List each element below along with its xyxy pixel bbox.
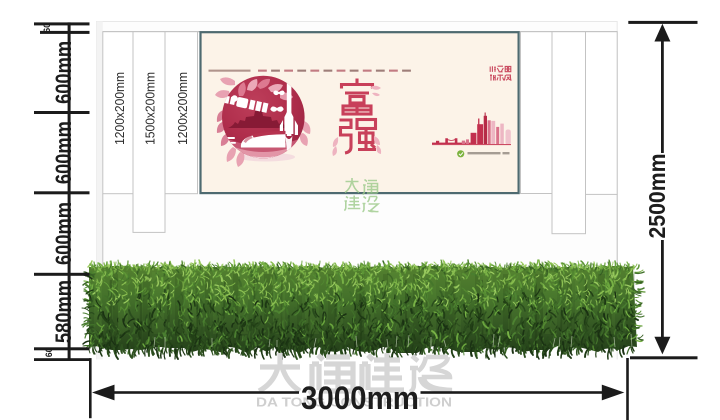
svg-text:60: 60 <box>44 347 54 357</box>
svg-text:600mm: 600mm <box>51 121 76 184</box>
svg-text:3000mm: 3000mm <box>301 380 419 416</box>
svg-text:600mm: 600mm <box>51 202 76 265</box>
svg-text:1200x200mm: 1200x200mm <box>113 72 127 145</box>
svg-text:600mm: 600mm <box>51 41 76 104</box>
svg-text:1500x200mm: 1500x200mm <box>144 72 158 145</box>
svg-text:580mm: 580mm <box>51 280 76 343</box>
svg-text:2500mm: 2500mm <box>644 154 670 239</box>
svg-text:60: 60 <box>42 23 52 33</box>
svg-text:1200x200mm: 1200x200mm <box>176 72 190 145</box>
